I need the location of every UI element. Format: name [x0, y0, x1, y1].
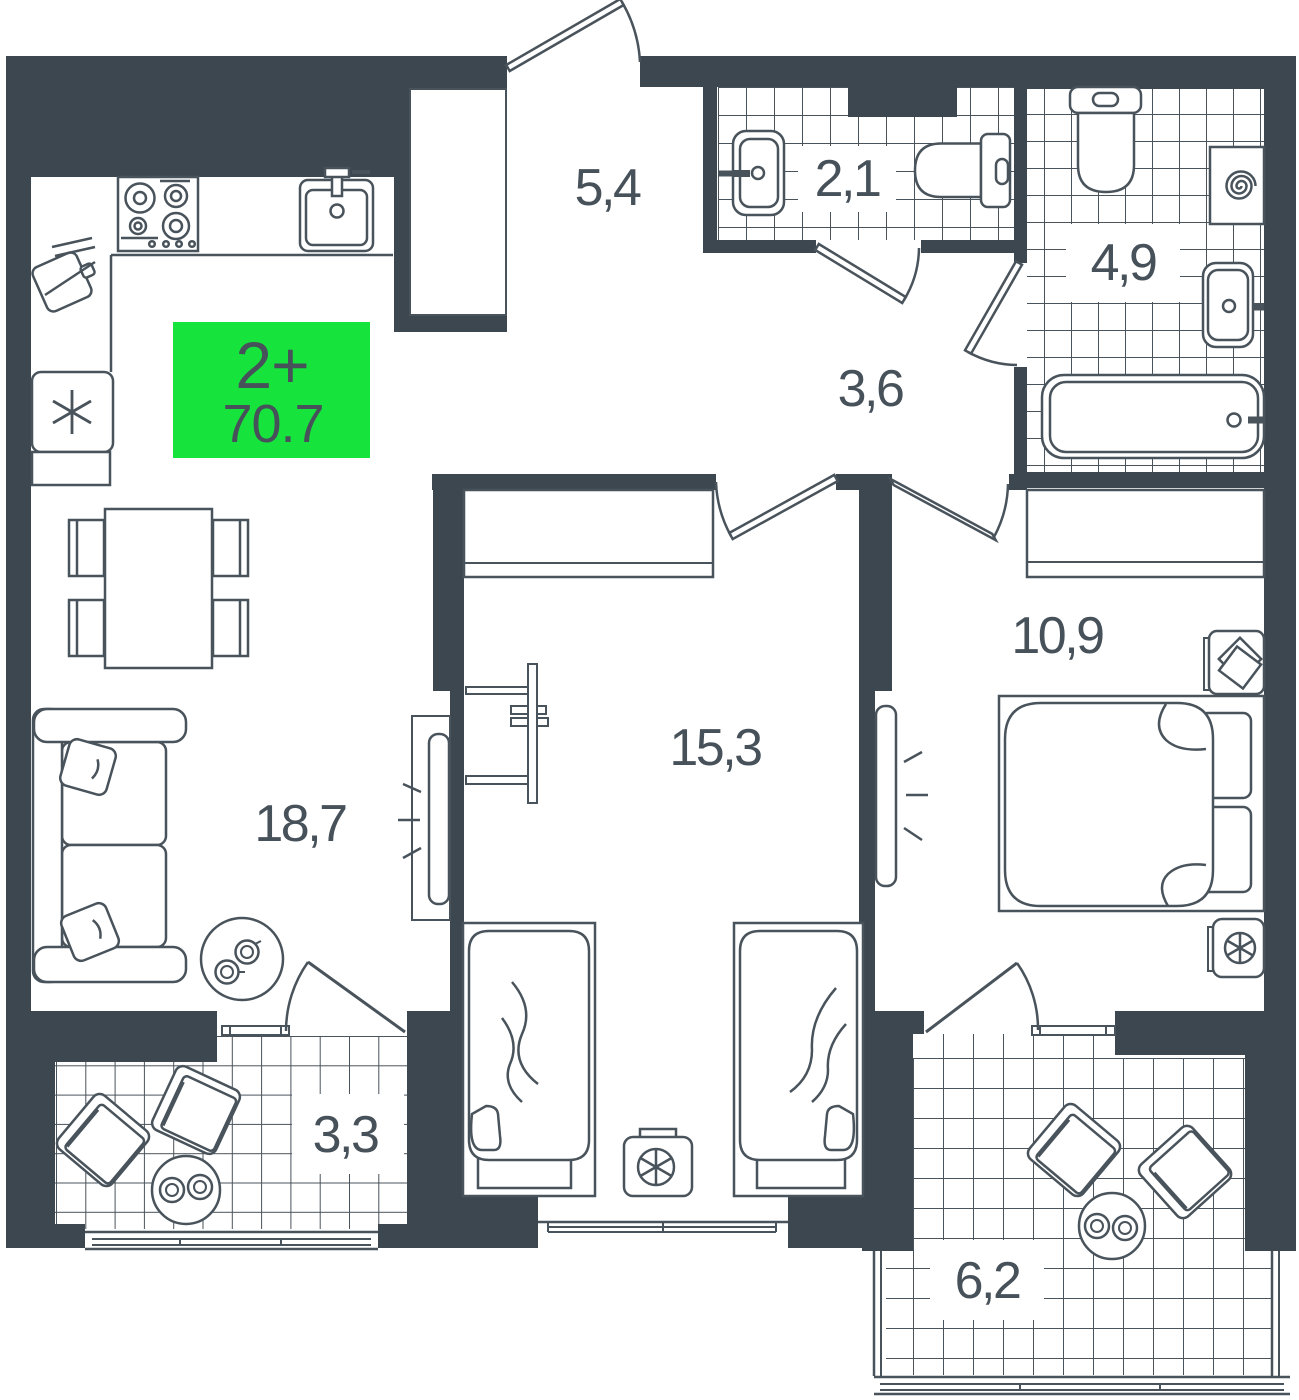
svg-text:70.7: 70.7	[222, 394, 323, 454]
svg-text:3,6: 3,6	[838, 360, 903, 418]
svg-text:3,3: 3,3	[313, 1106, 378, 1164]
svg-text:15,3: 15,3	[669, 719, 761, 777]
svg-text:2+: 2+	[235, 328, 308, 402]
svg-text:2,1: 2,1	[815, 150, 880, 208]
svg-text:4,9: 4,9	[1091, 234, 1156, 292]
svg-text:18,7: 18,7	[254, 795, 346, 853]
svg-text:10,9: 10,9	[1011, 607, 1103, 665]
svg-text:6,2: 6,2	[955, 1252, 1020, 1310]
svg-text:5,4: 5,4	[575, 159, 641, 217]
